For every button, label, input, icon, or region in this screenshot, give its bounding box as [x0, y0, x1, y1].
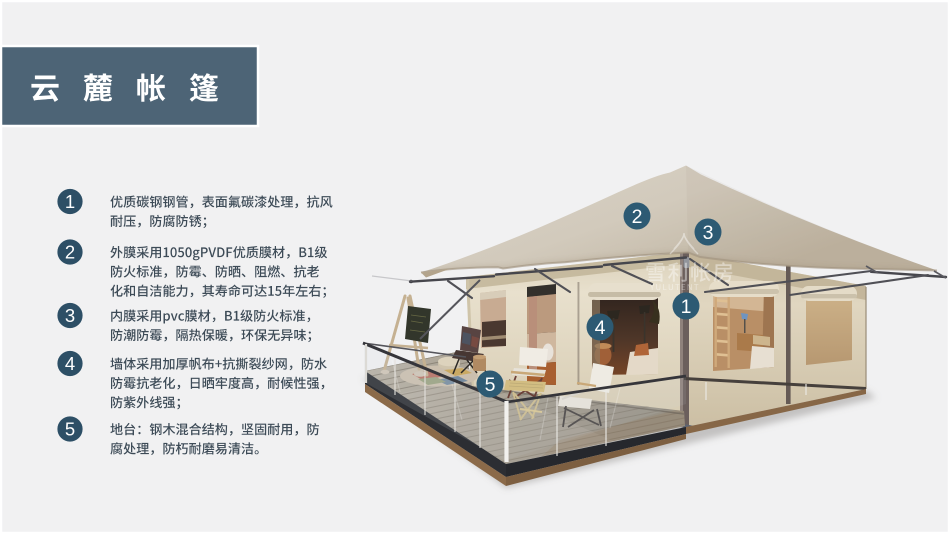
svg-text:3: 3: [65, 305, 75, 326]
svg-text:4: 4: [595, 317, 606, 339]
svg-text:2: 2: [65, 242, 75, 263]
svg-text:3: 3: [703, 222, 714, 244]
svg-text:1: 1: [681, 296, 692, 318]
svg-text:1: 1: [65, 191, 75, 212]
svg-text:5: 5: [485, 374, 496, 396]
svg-text:5: 5: [65, 419, 75, 440]
svg-text:2: 2: [632, 206, 643, 228]
svg-text:4: 4: [65, 353, 75, 374]
